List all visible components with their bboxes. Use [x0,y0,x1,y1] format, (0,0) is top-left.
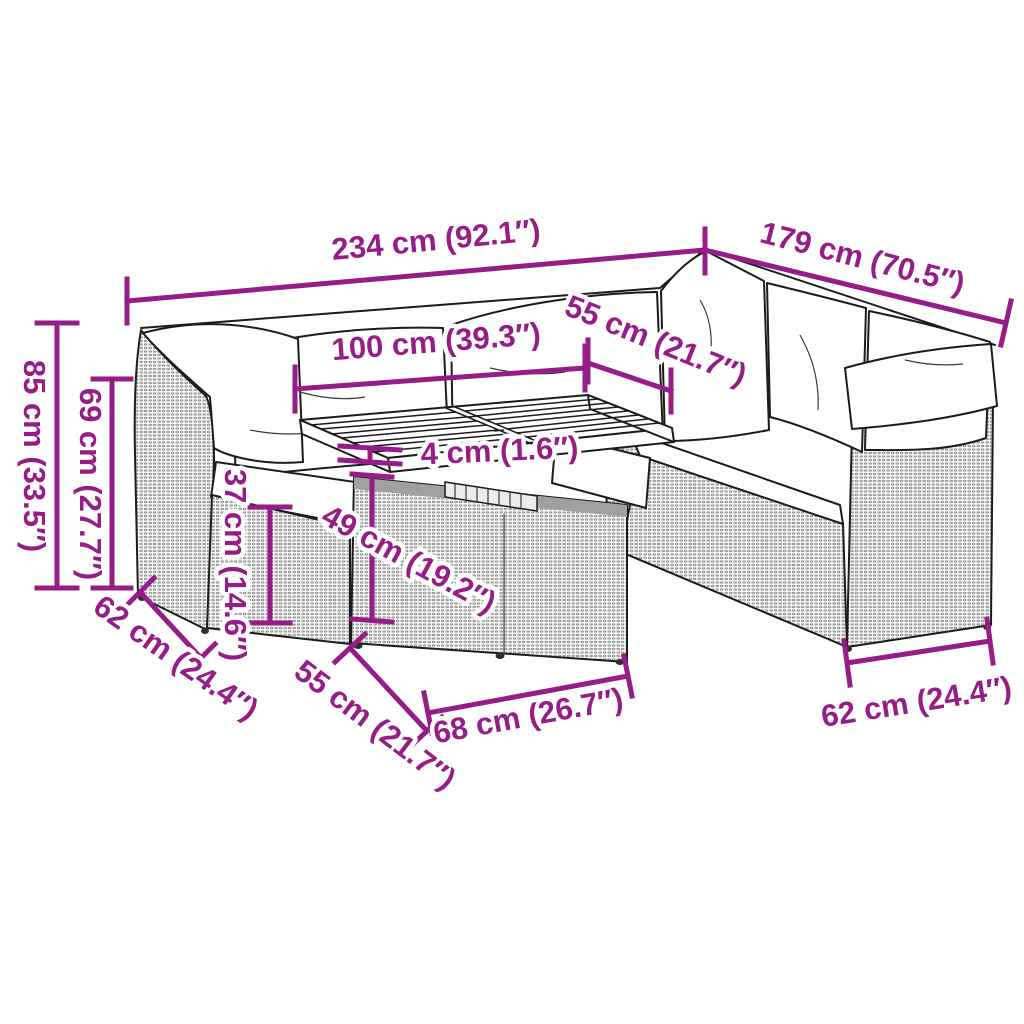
dim-overall-width-label: 234 cm (92.1″) [330,212,542,267]
dimension-diagram: 234 cm (92.1″) 179 cm (70.5″) 100 cm (39… [0,0,1024,1024]
dim-seat-height-label: 37 cm (14.6″) [218,469,253,661]
dim-overall-height-label: 85 cm (33.5″) [17,360,52,552]
diagram-canvas: 234 cm (92.1″) 179 cm (70.5″) 100 cm (39… [0,0,1024,1024]
dim-top-thickness-label: 4 cm (1.6″) [420,430,579,472]
dim-backrest-height-label: 69 cm (27.7″) [73,388,108,580]
dim-base-width-label: 68 cm (26.7″) [430,681,626,750]
